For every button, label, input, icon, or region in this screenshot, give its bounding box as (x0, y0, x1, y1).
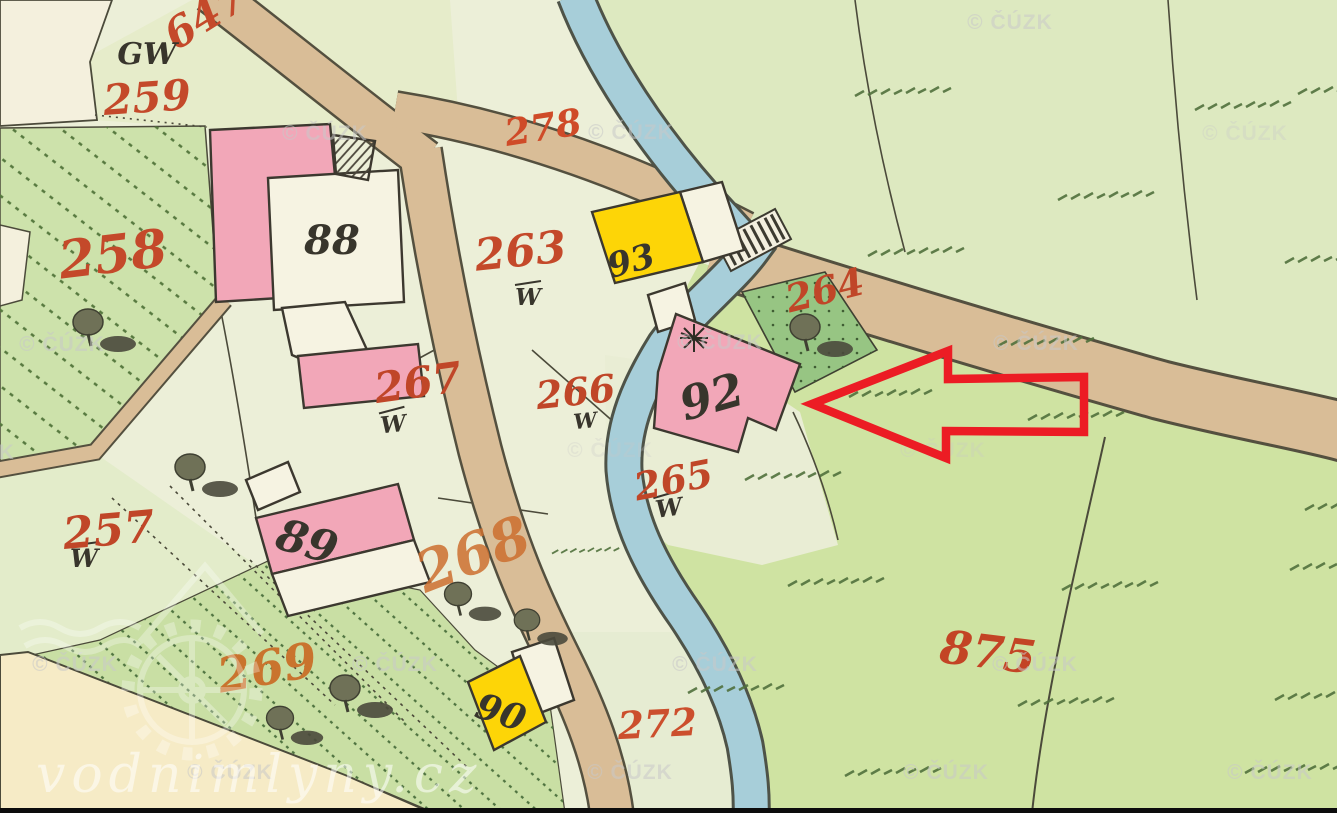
cuzk-watermark: © ČÚZK (903, 760, 989, 784)
parcel-number-263: 263 (471, 221, 569, 281)
w-symbol: W (379, 410, 410, 440)
bottom-border (0, 808, 1337, 813)
cuzk-watermark: © ČÚZK (588, 120, 674, 144)
label-gw: GW (117, 37, 180, 72)
parcel-number-259: 259 (101, 70, 193, 125)
cuzk-watermark: © ČÚZK (352, 652, 438, 676)
cuzk-watermark: © ČÚZK (1227, 760, 1313, 784)
cuzk-watermark: © ČÚZK (282, 121, 368, 145)
w-symbol: W (515, 284, 543, 311)
parcel-number-257: 257 (60, 501, 157, 560)
cuzk-watermark: © ČÚZK (1202, 121, 1288, 145)
cuzk-watermark: © ČÚZK (992, 652, 1078, 676)
cuzk-watermark: © ČÚZK (0, 440, 15, 464)
building-number-88: 88 (303, 217, 360, 264)
cuzk-watermark: © ČÚZK (967, 10, 1053, 34)
cuzk-watermark: © ČÚZK (19, 332, 105, 356)
parcel-number-272: 272 (616, 699, 699, 748)
cuzk-watermark: © ČÚZK (587, 760, 673, 784)
parcel-number-266: 266 (533, 365, 618, 418)
cuzk-watermark: © ČÚZK (672, 652, 758, 676)
cuzk-watermark: © ČÚZK (567, 438, 653, 462)
map-canvas: W W W W W 647 259 278 258 263 264 266 26… (0, 0, 1337, 813)
cadastral-map[interactable]: W W W W W 647 259 278 258 263 264 266 26… (0, 0, 1337, 813)
cuzk-watermark: © ČÚZK (993, 331, 1079, 355)
cuzk-watermark: © ČÚZK (32, 652, 118, 676)
vodnimlyny-text: vodnimlyny.cz (36, 745, 482, 805)
cuzk-watermark: © ČÚZK (677, 330, 763, 354)
